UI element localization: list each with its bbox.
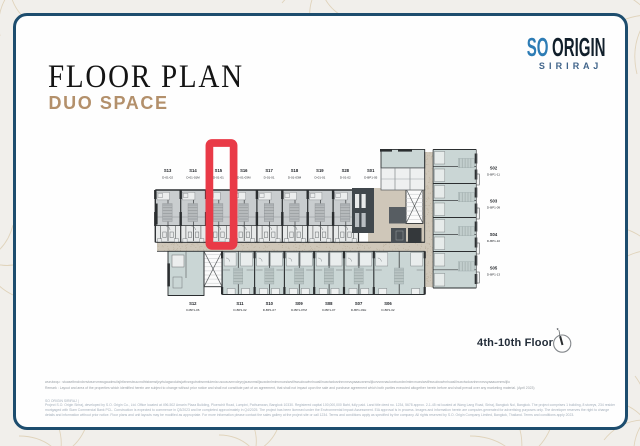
svg-text:D-BP1-09: D-BP1-09 <box>487 206 501 210</box>
svg-text:S19: S19 <box>316 168 324 173</box>
svg-text:D-BP1-13: D-BP1-13 <box>487 273 501 277</box>
svg-text:D-BP1-10: D-BP1-10 <box>487 239 501 243</box>
svg-text:S11: S11 <box>236 301 244 306</box>
svg-text:S28: S28 <box>342 168 350 173</box>
svg-text:S12: S12 <box>189 301 197 306</box>
svg-text:S18: S18 <box>291 168 299 173</box>
svg-text:D-01-01: D-01-01 <box>314 175 325 179</box>
svg-text:S08: S08 <box>325 301 333 306</box>
svg-text:D-01-02: D-01-02 <box>162 175 173 179</box>
svg-text:D-BP1-11: D-BP1-11 <box>487 173 500 177</box>
svg-text:S13: S13 <box>164 168 172 173</box>
svg-text:S10: S10 <box>266 301 274 306</box>
svg-text:S04: S04 <box>490 232 498 237</box>
svg-text:S09: S09 <box>295 301 303 306</box>
svg-text:D-BP1-07M: D-BP1-07M <box>291 308 307 312</box>
svg-text:D-01-03M: D-01-03M <box>237 175 251 179</box>
svg-text:D-01-02: D-01-02 <box>340 175 351 179</box>
svg-text:D-01-03M: D-01-03M <box>288 175 302 179</box>
svg-text:D-BP1-03H: D-BP1-03H <box>351 308 366 312</box>
svg-text:S05: S05 <box>490 266 498 271</box>
svg-text:D-01-01: D-01-01 <box>264 175 275 179</box>
svg-text:S07: S07 <box>355 301 363 306</box>
svg-text:S06: S06 <box>384 301 392 306</box>
svg-text:S03: S03 <box>490 199 498 204</box>
svg-text:*: * <box>557 328 559 334</box>
svg-text:D-BP1-02: D-BP1-02 <box>381 308 395 312</box>
svg-text:S14: S14 <box>189 168 197 173</box>
svg-text:D-BP1-05: D-BP1-05 <box>364 175 378 179</box>
svg-text:S15: S15 <box>215 168 223 173</box>
svg-text:S02: S02 <box>490 166 498 171</box>
svg-text:D-BP1-02: D-BP1-02 <box>233 308 247 312</box>
svg-text:D-BP1-07: D-BP1-07 <box>263 308 277 312</box>
svg-text:D-01-01: D-01-01 <box>213 175 224 179</box>
svg-text:S01: S01 <box>367 168 375 173</box>
svg-text:D-01-01M: D-01-01M <box>186 175 200 179</box>
svg-text:S16: S16 <box>240 168 248 173</box>
svg-text:S17: S17 <box>265 168 273 173</box>
svg-text:D-BP1-06: D-BP1-06 <box>186 308 200 312</box>
svg-text:D-BP1-07: D-BP1-07 <box>322 308 336 312</box>
